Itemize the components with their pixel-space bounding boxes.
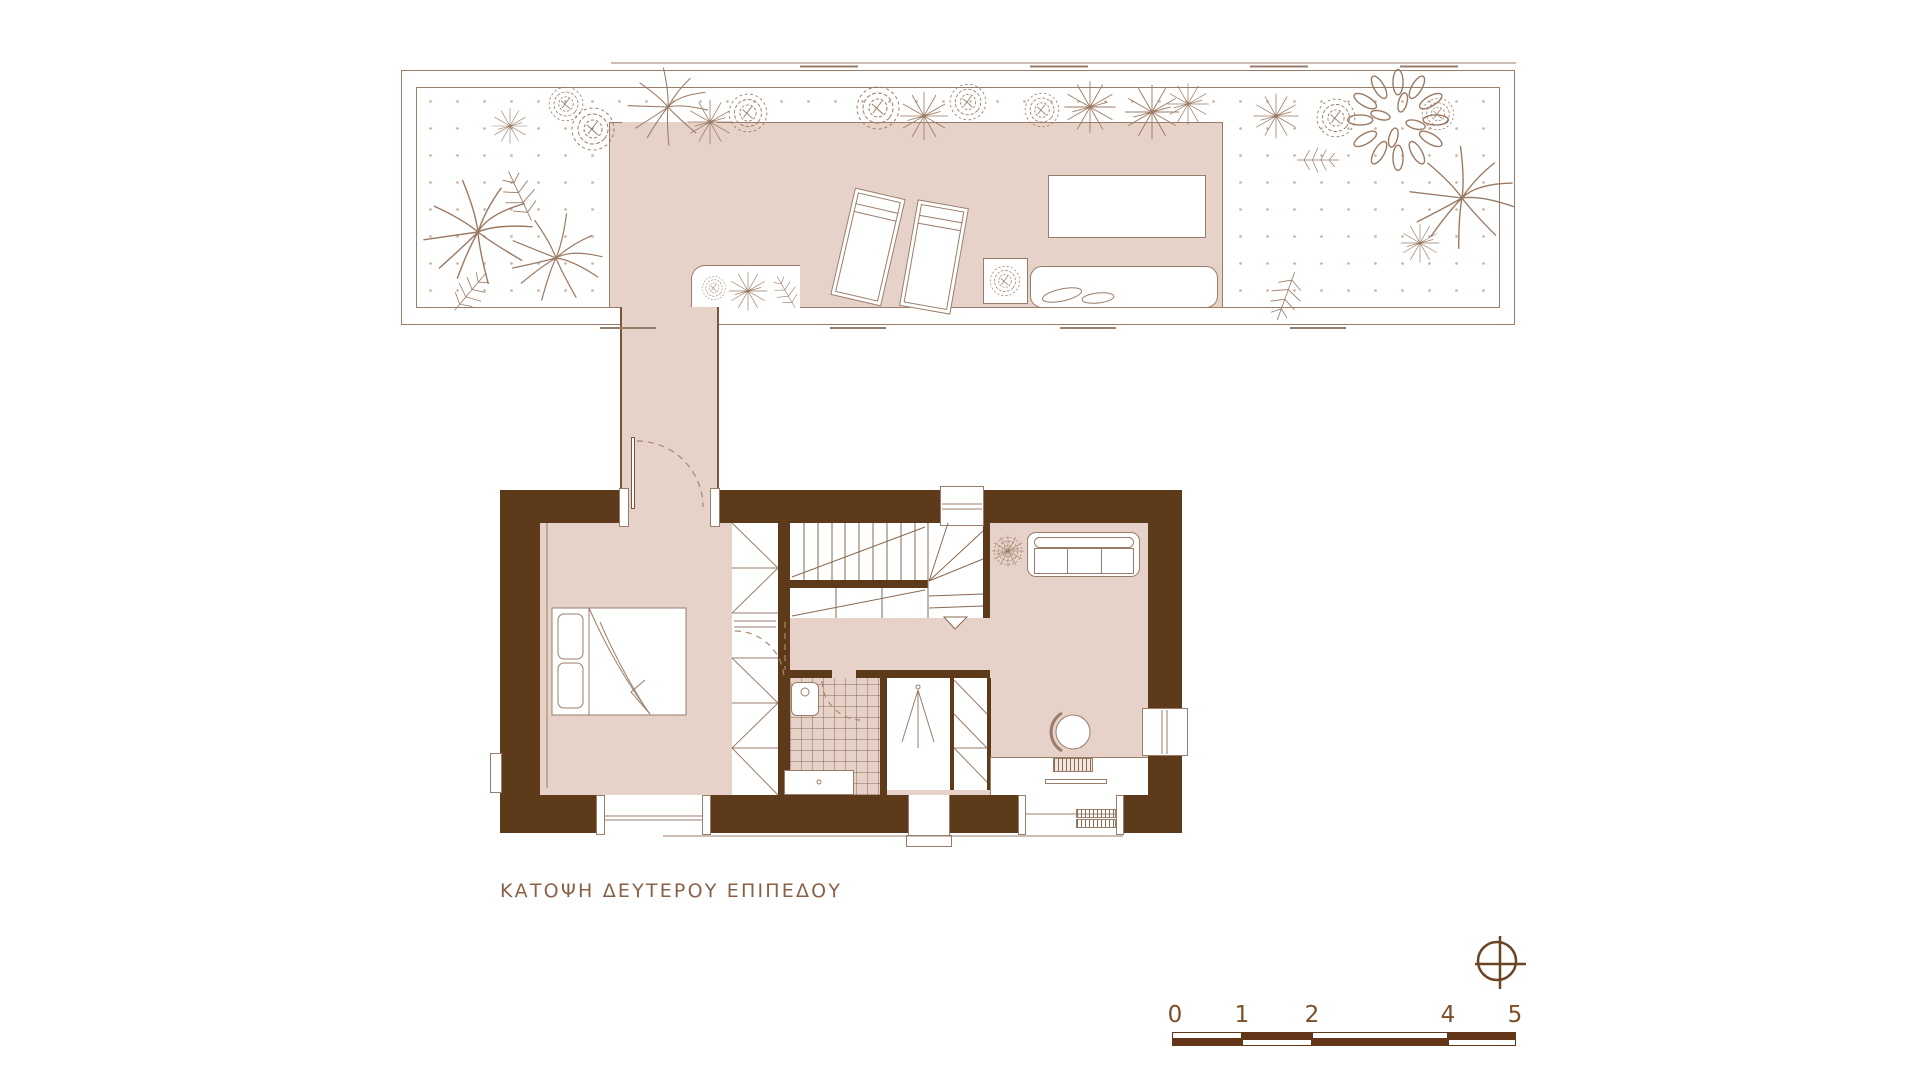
shower-window-sill: [906, 835, 952, 847]
scale-label-4: 4: [1433, 1002, 1463, 1028]
bedroom-wardrobe: [732, 523, 778, 795]
sink: [791, 682, 819, 716]
bathroom-top-wall: [856, 670, 887, 678]
deck-planting-notch: [691, 265, 800, 308]
hall-bottom-wall: [887, 670, 990, 678]
sofa-backrest: [1034, 537, 1134, 548]
entry-door-jamb: [710, 488, 720, 527]
sofa-seat-divider: [1067, 548, 1068, 574]
window-jamb: [702, 795, 711, 835]
staircase-winder: [928, 523, 983, 618]
scale-segment: [1312, 1032, 1448, 1039]
shower-window: [908, 795, 950, 835]
entry-door-jamb: [619, 488, 629, 527]
staircase-upper-flight: [790, 523, 928, 580]
scale-label-1: 1: [1227, 1002, 1257, 1028]
staircase-side-wall: [983, 523, 990, 618]
left-wall-niche: [490, 753, 502, 793]
bedroom-window: [596, 795, 711, 835]
roof-opening: [1048, 175, 1206, 238]
scale-segment: [1448, 1039, 1516, 1046]
sliding-panel: [1076, 819, 1116, 828]
sliding-panel: [1076, 809, 1116, 818]
scale-segment: [1448, 1032, 1516, 1039]
plan-title: ΚΑΤΟΨΗ ΔΕΥΤΕΡΟΥ ΕΠΙΠΕΔΟΥ: [500, 880, 842, 902]
top-wall-niche: [940, 486, 984, 526]
scale-label-2: 2: [1297, 1002, 1327, 1028]
sofa: [1027, 532, 1140, 577]
staircase-lower-flight: [790, 588, 928, 618]
planter-box: [983, 258, 1028, 304]
laptop: [1053, 758, 1093, 772]
scale-label-5: 5: [1500, 1002, 1530, 1028]
daybed: [1030, 266, 1218, 308]
north-indicator-icon: [1475, 936, 1526, 989]
entry-door-opening: [629, 490, 711, 527]
hall-closet: [954, 678, 987, 790]
shower: [887, 678, 950, 790]
scale-segment: [1242, 1032, 1312, 1039]
sofa-seat: [1034, 548, 1134, 574]
bathroom-shower-wall: [880, 678, 887, 795]
right-wall-window: [1142, 708, 1188, 756]
staircase-mid-wall: [790, 580, 928, 588]
scale-label-0: 0: [1160, 1002, 1190, 1028]
sofa-seat-divider: [1101, 548, 1102, 574]
partition-wall: [778, 523, 790, 795]
scale-segment: [1312, 1039, 1448, 1046]
window-jamb: [596, 795, 605, 835]
desk-drawer: [1045, 779, 1107, 784]
entry-door-leaf: [631, 437, 635, 509]
floor-plan-sheet: ΚΑΤΟΨΗ ΔΕΥΤΕΡΟΥ ΕΠΙΠΕΔΟΥ 0 1 2 4 5: [0, 0, 1920, 1080]
window-jamb: [1116, 795, 1124, 835]
scale-segment: [1172, 1039, 1242, 1046]
scale-segment: [1242, 1039, 1312, 1046]
bathroom-top-wall: [778, 670, 832, 678]
scale-segment: [1172, 1032, 1242, 1039]
window-jamb: [1018, 795, 1026, 835]
bathtub: [784, 770, 854, 795]
